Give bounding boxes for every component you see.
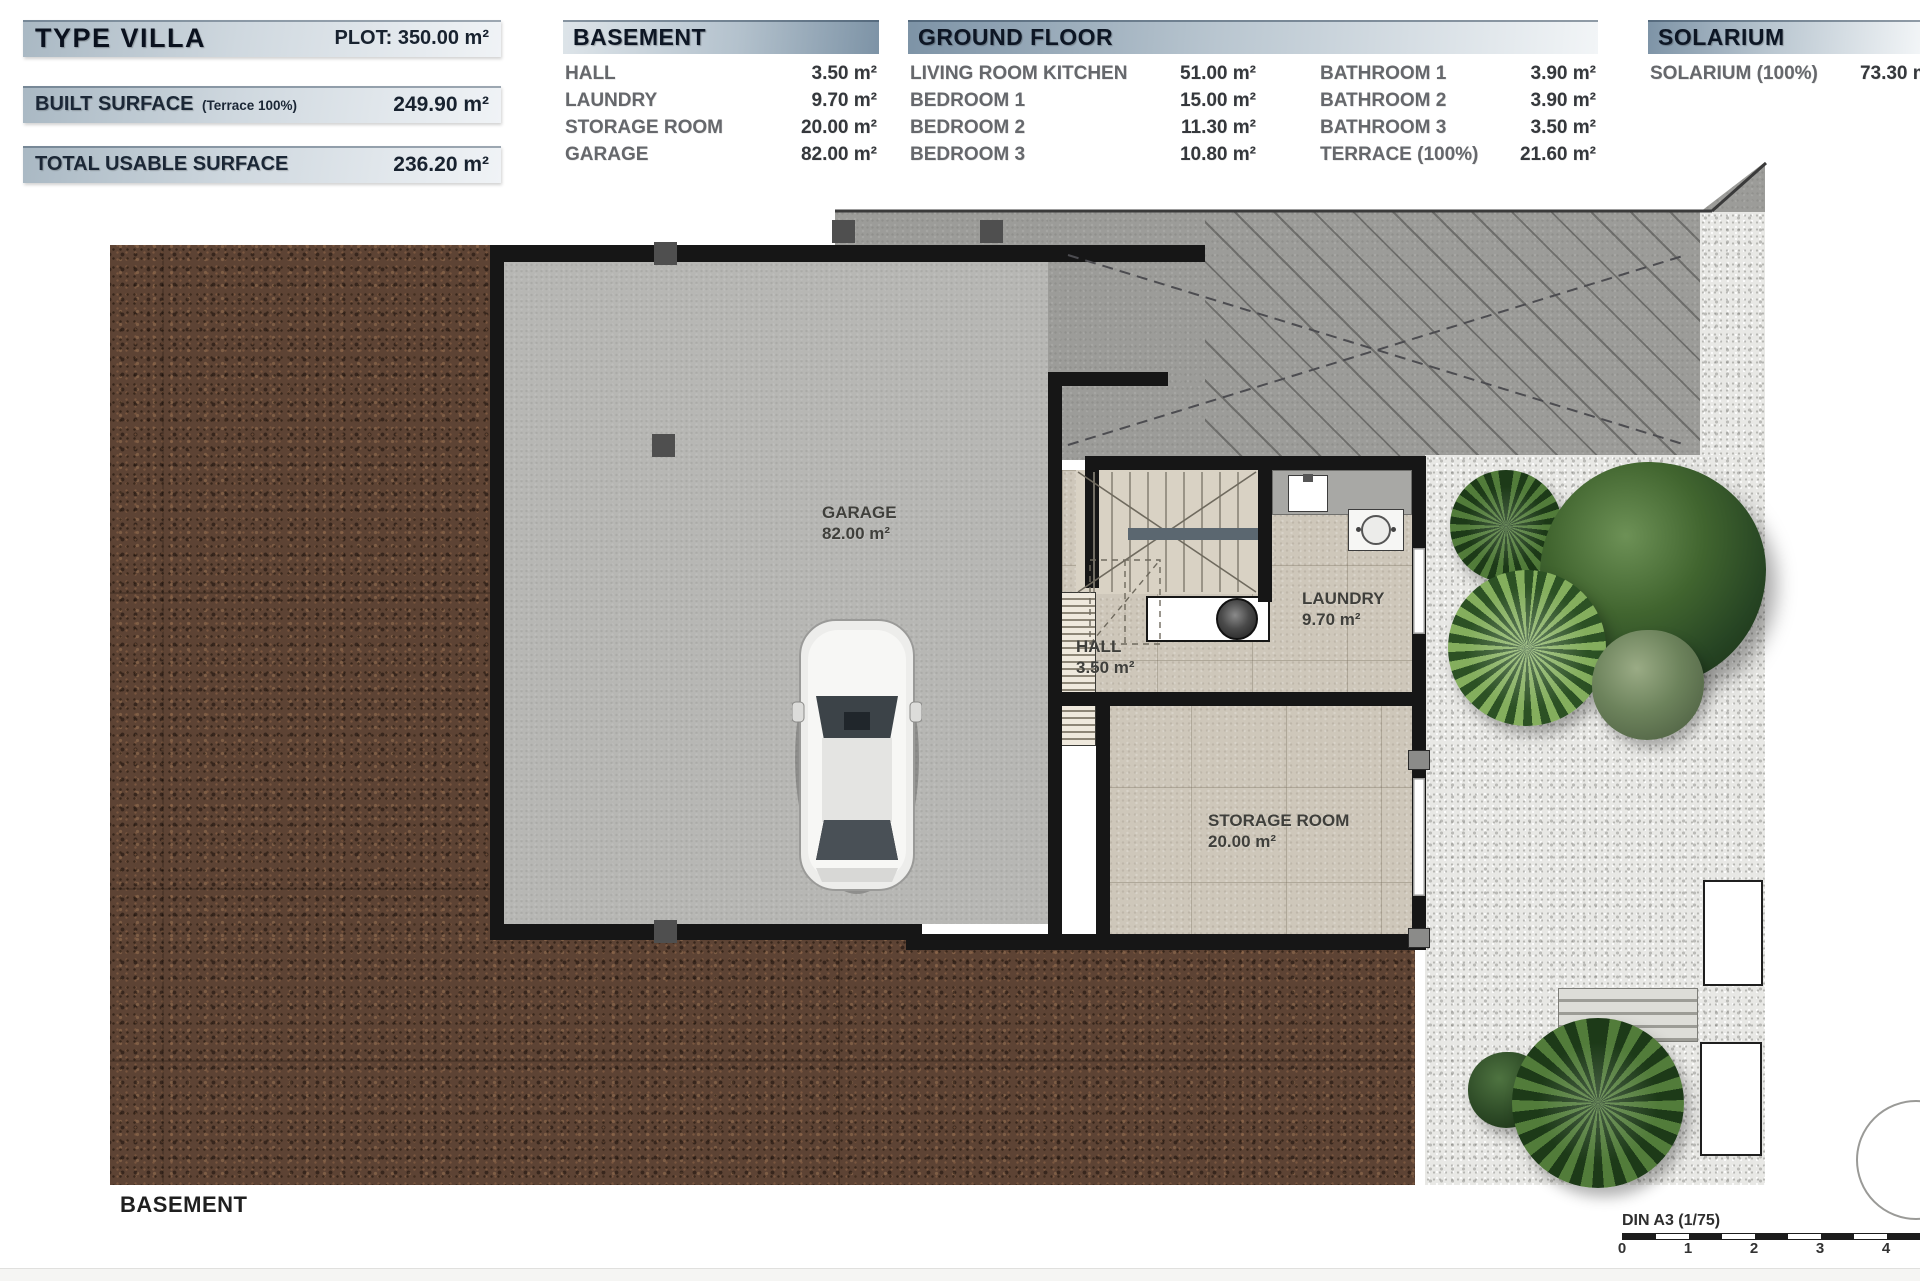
column <box>654 920 677 943</box>
garage-floor <box>504 262 1048 924</box>
outline-tree-symbol <box>1856 1100 1920 1220</box>
column <box>832 220 855 243</box>
laundry-sink <box>1288 475 1328 512</box>
wall-hall-left <box>1085 470 1099 588</box>
washing-machine <box>1348 509 1404 551</box>
gravel-strip-top <box>1700 212 1765 455</box>
wall-block-top <box>1085 456 1426 470</box>
terrain-joint <box>838 938 840 1185</box>
driveway-hatch <box>1205 212 1700 458</box>
scale-bar-group: DIN A3 (1/75) 0 1 2 3 4 <box>1622 1212 1920 1272</box>
floor-plan-sheet: { "summary": { "type_title": "TYPE VILLA… <box>0 0 1920 1280</box>
wall-top <box>490 245 1205 262</box>
scale-tick: 0 <box>1611 1240 1633 1257</box>
wall-hall-storage <box>1062 692 1412 706</box>
wall-garage-bottom <box>490 924 920 940</box>
staircase <box>1076 470 1258 594</box>
wall-storage-bottom <box>906 934 1426 950</box>
hall-label: HALL 3.50 m² <box>1076 636 1135 679</box>
driveway-entrance-wedge <box>1700 162 1765 212</box>
storage-label: STORAGE ROOM 20.00 m² <box>1208 810 1349 853</box>
scale-label: DIN A3 (1/75) <box>1622 1212 1920 1230</box>
terrain-joint <box>162 245 164 1185</box>
wall-pier <box>1408 928 1430 948</box>
wall-storage-left <box>1096 700 1110 950</box>
wall-laundry-left <box>1258 462 1272 602</box>
terrain-joint <box>1208 938 1210 1185</box>
planter-box <box>1703 880 1763 986</box>
laundry-label: LAUNDRY 9.70 m² <box>1302 588 1384 631</box>
floor-title: BASEMENT <box>120 1192 247 1218</box>
terrain-joint <box>110 592 490 594</box>
wall-garage-right <box>1048 374 1062 940</box>
sheet-bottom-edge <box>0 1268 1920 1281</box>
terrain-joint <box>110 1060 1415 1062</box>
palm-tree <box>1448 570 1606 726</box>
spiky-tree <box>1512 1018 1684 1188</box>
window <box>1413 548 1425 634</box>
window <box>1413 778 1425 896</box>
boiler <box>1216 598 1258 640</box>
planter-box <box>1700 1042 1762 1156</box>
car-top-view <box>792 616 922 896</box>
scale-tick: 3 <box>1809 1240 1831 1257</box>
scale-tick: 1 <box>1677 1240 1699 1257</box>
wall-left <box>490 245 504 940</box>
garage-label: GARAGE 82.00 m² <box>822 502 897 545</box>
scale-tick: 4 <box>1875 1240 1897 1257</box>
column <box>980 220 1003 243</box>
driveway-inset <box>1048 210 1208 386</box>
column <box>652 434 675 457</box>
scale-tick: 2 <box>1743 1240 1765 1257</box>
column <box>654 242 677 265</box>
scale-bar <box>1622 1233 1920 1240</box>
wall-stub <box>1048 372 1168 386</box>
terrain-joint <box>110 888 490 890</box>
wall-pier <box>1408 750 1430 770</box>
round-bush <box>1592 630 1704 740</box>
floor-plan-drawing: GARAGE 82.00 m² HALL 3.50 m² LAUNDRY 9.7… <box>0 0 1920 1280</box>
